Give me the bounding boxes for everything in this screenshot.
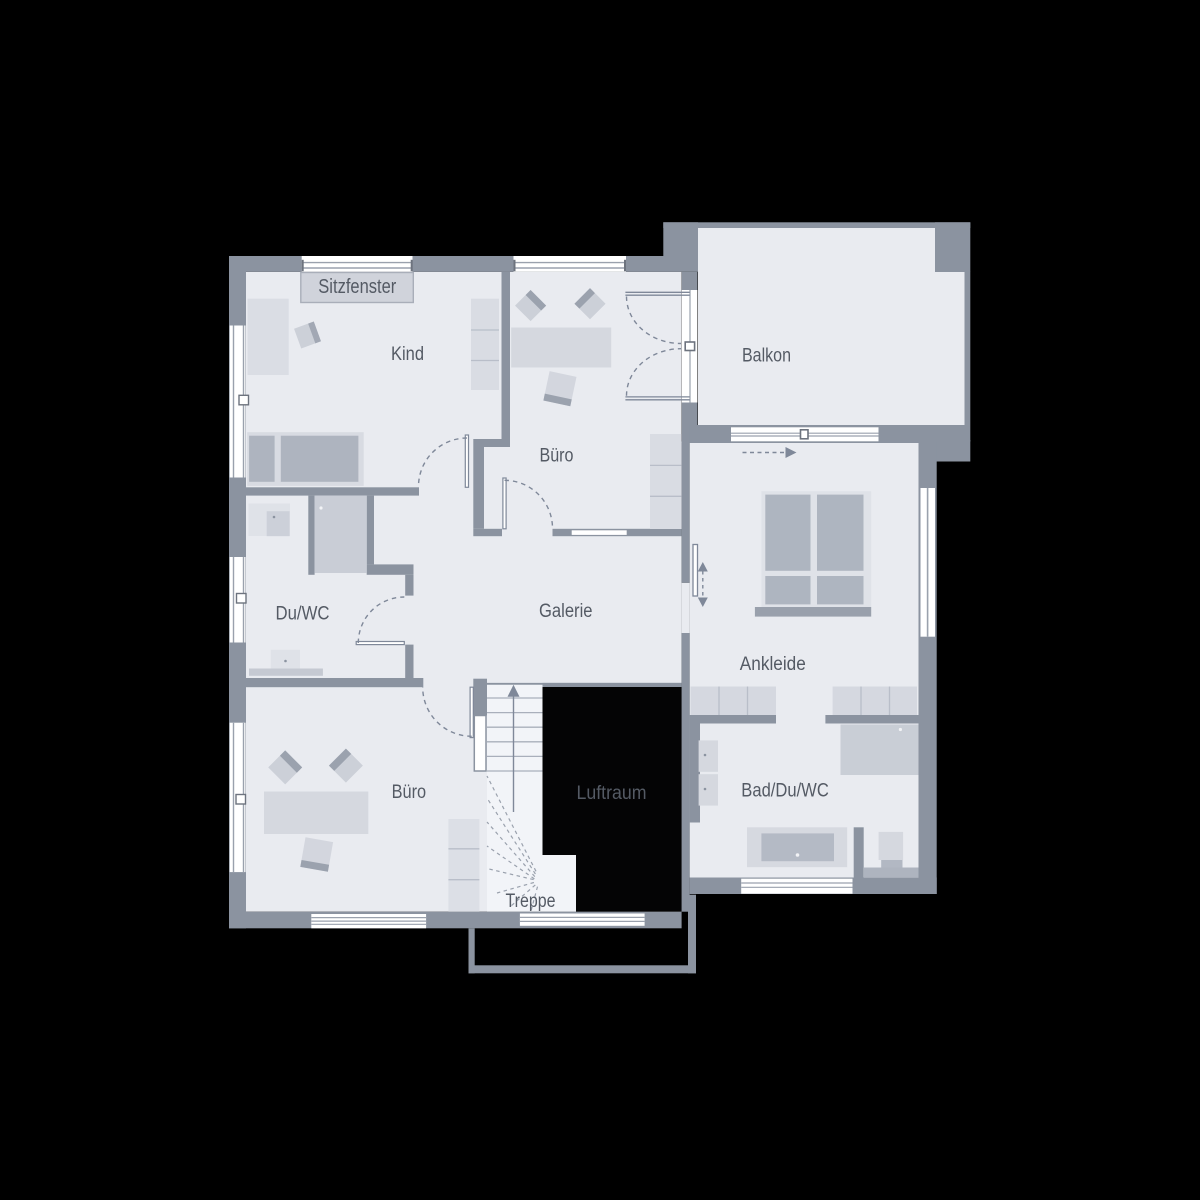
svg-text:Büro: Büro <box>540 446 574 467</box>
svg-text:Kind: Kind <box>391 344 424 365</box>
svg-text:Balkon: Balkon <box>742 345 791 366</box>
svg-text:Du/WC: Du/WC <box>276 604 330 625</box>
svg-text:Luftraum: Luftraum <box>577 783 647 804</box>
svg-text:Ankleide: Ankleide <box>740 654 806 675</box>
svg-text:Sitzfenster: Sitzfenster <box>318 276 396 298</box>
svg-text:Galerie: Galerie <box>539 601 593 622</box>
svg-text:Treppe: Treppe <box>506 891 556 912</box>
svg-text:Bad/Du/WC: Bad/Du/WC <box>741 780 829 801</box>
svg-text:Büro: Büro <box>392 782 427 803</box>
